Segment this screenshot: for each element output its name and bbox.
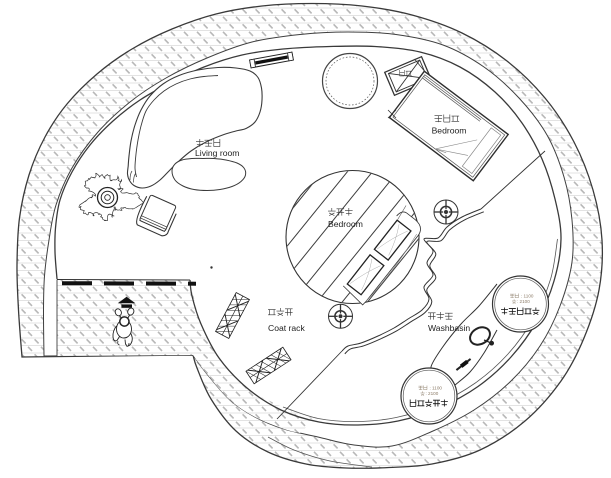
svg-text:: 2100: : 2100 [517, 299, 530, 304]
svg-text:: 2100: : 2100 [426, 391, 439, 396]
svg-text:: 1100: : 1100 [430, 385, 443, 390]
svg-text:: 1100: : 1100 [521, 293, 534, 298]
svg-text:Bedroom: Bedroom [328, 219, 363, 229]
svg-text:Living room: Living room [195, 148, 239, 158]
svg-text:Washbasin: Washbasin [428, 323, 470, 333]
svg-text:Bedroom: Bedroom [432, 126, 467, 136]
svg-text:Coat rack: Coat rack [268, 323, 305, 333]
